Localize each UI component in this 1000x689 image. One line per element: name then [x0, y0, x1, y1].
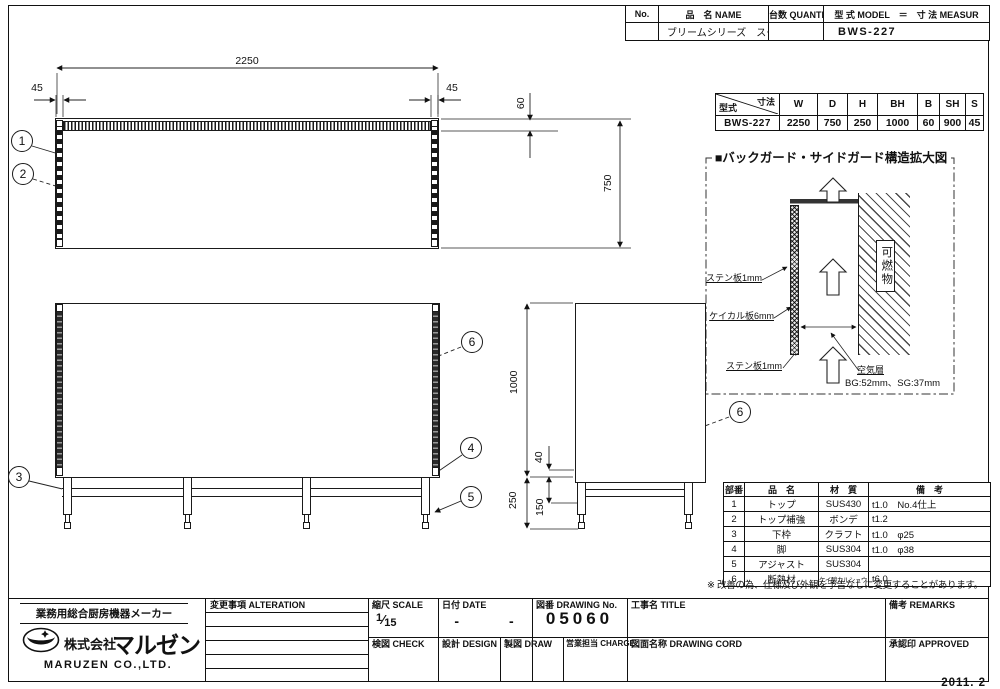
balloon-4-number: 4 [468, 442, 475, 454]
part-remarks: t1.2 [869, 512, 991, 527]
part-material: SUS430 [819, 497, 869, 512]
guard-end-cap [431, 120, 438, 127]
part-remarks: t1.0 No.4仕上 [869, 497, 991, 512]
part-no: 1 [724, 497, 745, 512]
part-no: 2 [724, 512, 745, 527]
part-material: ボンデ [819, 512, 869, 527]
label-calcium-board: ケイカル板6mm [708, 312, 774, 322]
guard-end-cap [56, 239, 63, 247]
company-tagline: 業務用総合厨房機器メーカー [20, 603, 188, 624]
guard-end-cap [56, 120, 63, 127]
dim-val-bh: 1000 [878, 116, 918, 131]
header-no-value [626, 23, 659, 41]
dim-plan-guard-height: 60 [516, 94, 527, 112]
label-air-layer: 空気層 [857, 366, 891, 376]
scale-value: 1⁄15 [376, 612, 397, 627]
company-name-english: MARUZEN CO.,LTD. [28, 659, 188, 671]
adjuster-foot [64, 522, 71, 529]
parts-table: 部番 品 名 材 質 備 考 1 トップ SUS430 t1.0 No.4仕上 … [723, 482, 991, 587]
adjuster-foot [303, 522, 310, 529]
combustible-label: 可燃物 [880, 246, 892, 287]
model-value: BWS-227 [824, 23, 990, 41]
part-name: トップ [745, 497, 819, 512]
alteration-row-line [205, 654, 368, 655]
dim-side-rail: 150 [535, 495, 546, 519]
dim-val-b: 60 [918, 116, 940, 131]
title-block-divider [438, 598, 439, 682]
dim-table-corner: 寸法 型式 [716, 94, 780, 116]
guard-end-cap [431, 239, 438, 247]
balloon-2-number: 2 [20, 168, 27, 180]
adjuster-foot [578, 522, 585, 529]
dim-side-base: 250 [508, 488, 519, 512]
parts-header-remarks: 備 考 [869, 483, 991, 497]
detail-guard-panel [790, 205, 799, 355]
label-stainless-top: ステン板1mm [704, 274, 762, 284]
side-leg [684, 482, 693, 515]
front-side-guard-left [56, 305, 63, 476]
label-stainless-bottom: ステン板1mm [724, 362, 782, 372]
parts-row: 5 アジャスト SUS304 [724, 557, 991, 572]
parts-row: 1 トップ SUS430 t1.0 No.4仕上 [724, 497, 991, 512]
corner-katashiki-label: 型式 [719, 101, 737, 114]
dimension-table: 寸法 型式 W D H BH B SH S BWS-227 2250 750 2… [715, 93, 984, 131]
dim-row-model: BWS-227 [716, 116, 780, 131]
adjuster-foot [685, 522, 692, 529]
balloon-5-number: 5 [468, 491, 475, 503]
balloon-3-number: 3 [16, 471, 23, 483]
approved-label: 承認印 APPROVED [889, 640, 969, 649]
parts-header-material: 材 質 [819, 483, 869, 497]
adjuster-foot [184, 522, 191, 529]
company-prefix: 株式会社 [64, 634, 116, 653]
dim-val-h: 250 [848, 116, 878, 131]
detail-view-title: ■バックガード・サイドガード構造拡大図 [712, 151, 950, 166]
remarks-label: 備考 REMARKS [889, 601, 955, 610]
plan-side-guard-right [431, 120, 438, 247]
parts-row: 4 脚 SUS304 t1.0 φ38 [724, 542, 991, 557]
header-no-label: No. [626, 6, 659, 23]
part-name: トップ補強 [745, 512, 819, 527]
alteration-row-line [205, 668, 368, 669]
dim-val-s: 45 [966, 116, 984, 131]
balloon-6-front: 6 [461, 331, 483, 353]
balloon-2: 2 [12, 163, 34, 185]
parts-row: 2 トップ補強 ボンデ t1.2 [724, 512, 991, 527]
date-label: 日付 DATE [442, 601, 486, 610]
disclaimer-note: ※ 改善の為、仕様及び外観を予告なしに変更することがあります。 [707, 577, 990, 591]
side-leg [577, 482, 586, 515]
part-material: クラフト [819, 527, 869, 542]
detail-combustible-label-box: 可燃物 [876, 240, 895, 292]
balloon-5: 5 [460, 486, 482, 508]
product-name-value: ブリームシリーズ スープ台 [659, 23, 769, 41]
adjuster-foot [422, 522, 429, 529]
title-block-divider [368, 637, 989, 638]
header-table: No. 品 名 NAME 台数 QUANTITY 型 式 MODEL ＝ 寸 法… [625, 5, 990, 41]
parts-row: 3 下枠 クラフト t1.0 φ25 [724, 527, 991, 542]
dim-val-d: 750 [818, 116, 848, 131]
label-guard-gap: BG:52mm、SG:37mm [845, 379, 955, 389]
drawing-sheet: 1 2 3 4 5 6 6 2250 45 45 60 750 1000 250… [0, 0, 1000, 689]
parts-header-name: 品 名 [745, 483, 819, 497]
guard-end-cap [432, 467, 439, 476]
title-block-top-border [8, 598, 989, 599]
title-block-divider [500, 637, 501, 682]
guard-end-cap [432, 304, 439, 312]
dim-col-b: B [918, 94, 940, 116]
header-name-label: 品 名 NAME [659, 6, 769, 23]
part-remarks: t1.0 φ25 [869, 527, 991, 542]
parts-header-no: 部番 [724, 483, 745, 497]
drawing-no-value: 05060 [532, 609, 627, 629]
title-block-divider [563, 637, 564, 682]
drawing-cord-label: 図面名称 DRAWING CORD [631, 640, 742, 649]
part-no: 5 [724, 557, 745, 572]
part-remarks: t1.0 φ38 [869, 542, 991, 557]
front-leg [63, 477, 72, 515]
balloon-1: 1 [11, 130, 33, 152]
part-name: 下枠 [745, 527, 819, 542]
corner-sunpo-label: 寸法 [757, 95, 775, 108]
check-label: 検図 CHECK [372, 640, 425, 649]
balloon-4: 4 [460, 437, 482, 459]
part-remarks [869, 557, 991, 572]
alteration-row-line [205, 640, 368, 641]
title-block-divider [368, 598, 369, 682]
balloon-6-side: 6 [729, 401, 751, 423]
guard-end-cap [56, 467, 63, 476]
front-lower-frame [62, 488, 430, 497]
charge-label: 営業担当 CHARGE [566, 640, 635, 648]
front-leg [183, 477, 192, 515]
front-view-outline [55, 303, 440, 478]
dim-side-return: 40 [534, 448, 545, 466]
balloon-6-number: 6 [469, 336, 476, 348]
dim-plan-width: 2250 [227, 56, 267, 67]
dim-col-s: S [966, 94, 984, 116]
alteration-row-line [205, 612, 368, 613]
dim-col-w: W [780, 94, 818, 116]
scale-denominator: 15 [384, 617, 396, 629]
dim-val-sh: 900 [940, 116, 966, 131]
front-leg [421, 477, 430, 515]
dim-plan-depth: 750 [603, 168, 614, 198]
side-lower-frame [586, 489, 684, 497]
side-view-outline [575, 303, 706, 483]
maruzen-logo-icon [22, 627, 60, 653]
design-label: 設計 DESIGN [442, 640, 497, 649]
plan-side-guard-left [56, 120, 63, 247]
part-name: 脚 [745, 542, 819, 557]
dim-plan-left-offset: 45 [27, 83, 47, 94]
date-value: - - [440, 611, 530, 631]
plan-view-outline [55, 118, 439, 249]
dim-col-d: D [818, 94, 848, 116]
dim-side-height: 1000 [509, 365, 520, 399]
revision-date-stamp: 2011. 2 [870, 677, 986, 689]
alteration-row-line [205, 626, 368, 627]
company-logotype: マルゼン [112, 626, 200, 660]
front-leg [302, 477, 311, 515]
alteration-label: 変更事項 ALTERATION [210, 601, 305, 610]
draw-label: 製図 DRAW [504, 640, 552, 649]
front-side-guard-right [432, 305, 439, 476]
part-name: アジャスト [745, 557, 819, 572]
dim-col-sh: SH [940, 94, 966, 116]
part-no: 3 [724, 527, 745, 542]
part-material: SUS304 [819, 557, 869, 572]
balloon-6-number: 6 [737, 406, 744, 418]
balloon-1-number: 1 [19, 135, 26, 147]
dim-col-h: H [848, 94, 878, 116]
dim-plan-right-offset: 45 [442, 83, 462, 94]
dim-col-bh: BH [878, 94, 918, 116]
plan-back-guard [63, 121, 431, 131]
balloon-3: 3 [8, 466, 30, 488]
part-no: 4 [724, 542, 745, 557]
scale-numerator: 1 [376, 612, 382, 624]
header-qty-label: 台数 QUANTITY [769, 6, 824, 23]
header-model-label: 型 式 MODEL ＝ 寸 法 MEASUR [824, 6, 990, 23]
guard-end-cap [56, 304, 63, 312]
header-qty-value [769, 23, 824, 41]
part-material: SUS304 [819, 542, 869, 557]
scale-label: 縮尺 SCALE [372, 601, 423, 610]
dim-val-w: 2250 [780, 116, 818, 131]
project-title-label: 工事名 TITLE [631, 601, 686, 610]
title-block-divider [885, 598, 886, 682]
